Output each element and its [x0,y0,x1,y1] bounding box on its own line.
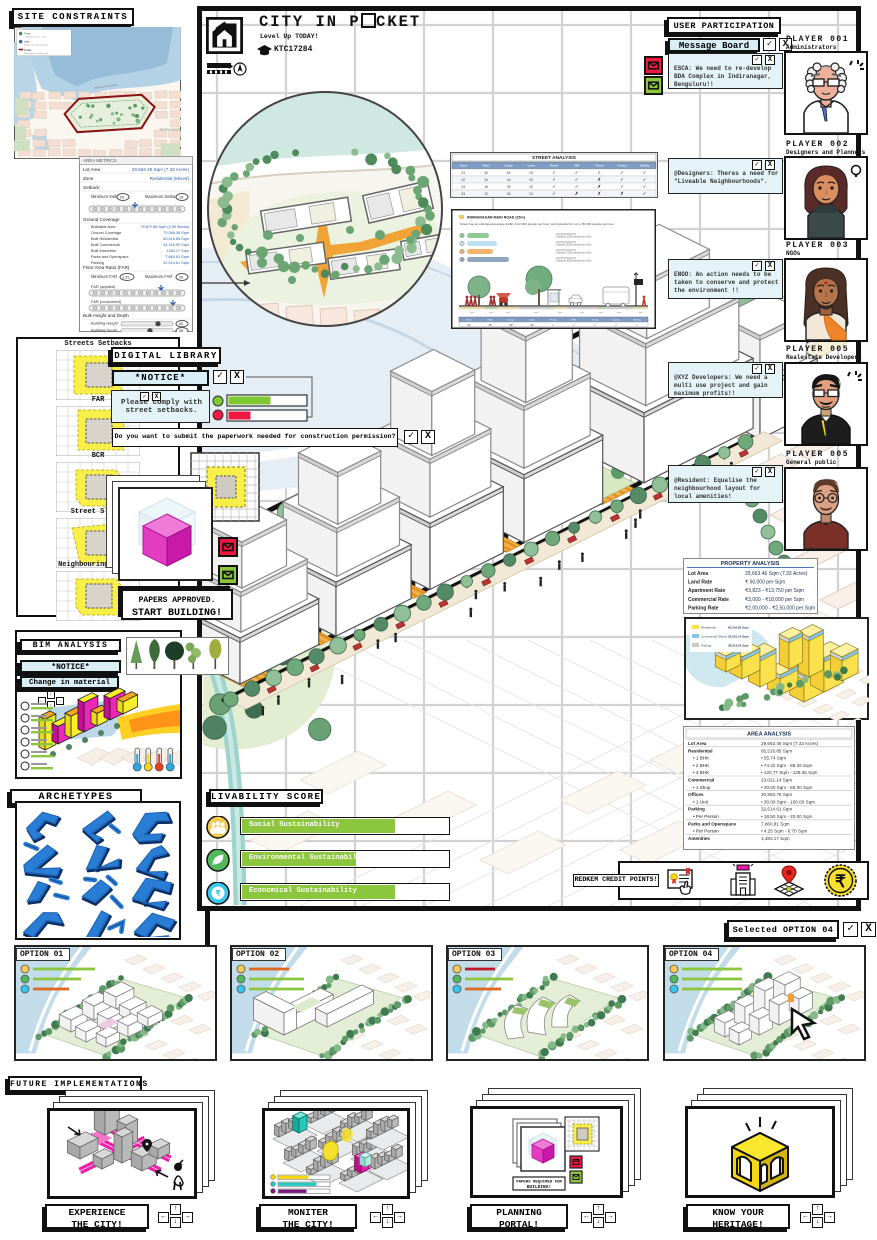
svg-text:1,483.17 Sqm: 1,483.17 Sqm [761,836,790,841]
svg-text:NMT: NMT [572,320,577,322]
svg-text:• 18.50 Sqm - 20.00 Sqm: • 18.50 Sqm - 20.00 Sqm [761,814,813,819]
svg-text:Ground Coverage: Ground Coverage [83,217,120,222]
svg-text:• 30.00 Sqm - 65.00 Sqm: • 30.00 Sqm - 65.00 Sqm [761,785,813,790]
svg-text:Maximum FAR: Maximum FAR [145,274,172,279]
svg-text:01: 01 [462,171,466,175]
svg-text:29,663.46 Sqm (7.33 Acres): 29,663.46 Sqm (7.33 Acres) [761,741,819,746]
svg-text:Built Commercial: Built Commercial [91,243,120,247]
svg-text:01: 01 [530,323,534,327]
svg-text:32,514.61 Sqm: 32,514.61 Sqm [728,644,749,648]
svg-text:7,860.81 Sqm: 7,860.81 Sqm [761,821,790,826]
svg-text:18: 18 [484,185,488,189]
svg-text:Capacity 3000 people per hour: Capacity 3000 people per hour [556,235,592,239]
svg-text:04: 04 [462,192,466,196]
svg-text:Minimum FAR: Minimum FAR [91,274,117,279]
svg-text:Lot Area: Lot Area [83,167,101,172]
svg-text:✗: ✗ [597,177,601,182]
svg-text:05: 05 [120,196,124,200]
svg-text:1483.17 Sqm: 1483.17 Sqm [166,249,189,253]
svg-text:24: 24 [484,178,488,182]
svg-text:✓: ✓ [552,177,556,182]
svg-text:✓: ✓ [552,323,554,327]
svg-text:✗: ✗ [575,191,579,196]
svg-text:Lot Area: Lot Area [688,741,707,746]
svg-text:Parking: Parking [701,644,712,648]
svg-text:✓: ✓ [643,170,647,175]
svg-text:05: 05 [179,276,183,280]
svg-text:• 1 Shop: • 1 Shop [693,785,711,790]
svg-text:PAPERS REQUIRED FOR: PAPERS REQUIRED FOR [516,1181,562,1185]
svg-text:65,516.85 Sqm: 65,516.85 Sqm [761,748,792,753]
svg-text:Private: Private [550,164,559,168]
svg-text:• 1 BHK: • 1 BHK [693,756,710,761]
svg-text:Apartment Rate: Apartment Rate [688,588,725,594]
svg-text:Land Rate: Land Rate [688,580,712,586]
svg-text:30: 30 [507,192,511,196]
svg-text:• 2 BHK: • 2 BHK [693,763,710,768]
svg-text:Residential: Residential [701,626,716,630]
svg-text:Walking: Walking [633,320,641,322]
svg-text:✓: ✓ [552,170,556,175]
svg-text:Cycling: Cycling [618,164,627,168]
svg-text:Design: Design [505,164,514,168]
svg-text:✓: ✓ [575,184,579,189]
svg-text:✗: ✗ [597,184,601,189]
svg-text:60: 60 [179,322,183,326]
svg-text:Street: Street [460,164,467,168]
svg-text:Design: Design [508,320,516,322]
svg-text:Amenities: Amenities [688,836,710,841]
svg-text:• 120.77 Sqm - 139.35 Sqm: • 120.77 Sqm - 139.35 Sqm [761,770,818,775]
svg-text:₹3,000 - ₹18,000 per Sqm: ₹3,000 - ₹18,000 per Sqm [745,597,804,603]
svg-text:Cycling: Cycling [612,320,620,322]
svg-text:FAR (consumed): FAR (consumed) [91,299,122,304]
svg-text:Commercial: Commercial [688,778,714,783]
svg-text:• 74.32 Sqm - 88.26 Sqm: • 74.32 Sqm - 88.26 Sqm [761,763,813,768]
svg-text:Lake: Lake [24,41,30,44]
svg-text:02: 02 [462,178,466,182]
svg-text:Capacity 7000 people per hour: Capacity 7000 people per hour [556,251,592,255]
svg-text:✓: ✓ [620,184,624,189]
svg-text:Street has an estimated averag: Street has an estimated average traffic … [460,222,615,226]
svg-text:✓: ✓ [615,323,617,327]
svg-text:Parks and Openspace: Parks and Openspace [688,821,736,826]
svg-text:Maximum Setback: Maximum Setback [145,194,180,199]
svg-text:03: 03 [530,171,534,175]
svg-text:15: 15 [488,323,492,327]
svg-text:• 3 BHK: • 3 BHK [693,770,710,775]
svg-text:✓: ✓ [552,184,556,189]
svg-text:✗: ✗ [597,191,601,196]
svg-text:Width: Width [483,164,490,168]
svg-text:Width: Width [487,319,493,322]
svg-text:✓: ✓ [643,184,647,189]
svg-text:29,663.46 Sqm (7.33 Acres): 29,663.46 Sqm (7.33 Acres) [132,167,190,172]
svg-text:Commercial Rate: Commercial Rate [688,597,729,603]
svg-text:65,516.85 Sqm: 65,516.85 Sqm [728,626,749,630]
svg-text:✓: ✓ [620,170,624,175]
svg-text:Lanes: Lanes [528,164,536,168]
svg-text:₹ 60,000 per Sqm: ₹ 60,000 per Sqm [745,580,785,586]
svg-text:₹3,823 - ₹13,750 per Sqm: ₹3,823 - ₹13,750 per Sqm [745,588,804,594]
svg-text:Zone: Zone [83,176,94,181]
svg-text:AREA ANALYSIS: AREA ANALYSIS [747,732,791,738]
svg-text:Transit: Transit [592,319,599,322]
svg-text:Commercial Offices: Commercial Offices [701,635,728,639]
svg-text:70,066.38 Sqm: 70,066.38 Sqm [163,231,189,235]
svg-text:Parking: Parking [688,807,705,812]
svg-text:Street: Street [466,319,472,322]
svg-text:65,516.85 Sqm: 65,516.85 Sqm [163,237,189,241]
svg-text:3.25: 3.25 [122,276,129,280]
svg-text:29,663.46 Sqm (7.33 Acres): 29,663.46 Sqm (7.33 Acres) [745,571,808,577]
svg-text:✓: ✓ [636,323,638,327]
svg-text:✓: ✓ [573,323,575,327]
svg-text:✓: ✓ [552,191,556,196]
svg-text:40: 40 [509,323,513,327]
svg-text:• 4.25 Sqm - 8.70 Sqm: • 4.25 Sqm - 8.70 Sqm [761,829,807,834]
svg-text:Capacity 9000 people per hour: Capacity 9000 people per hour [556,259,592,263]
svg-text:AREA METRICS: AREA METRICS [83,158,117,163]
svg-text:Setback: Setback [83,185,100,190]
svg-text:Floor Area Ratio (FAR): Floor Area Ratio (FAR) [83,265,130,270]
svg-text:Offices: Offices [688,792,704,797]
svg-text:01: 01 [530,192,534,196]
svg-text:Parking Rate: Parking Rate [688,605,719,611]
svg-text:Lot Area: Lot Area [688,571,708,577]
svg-text:Building Depth: Building Depth [91,328,117,333]
svg-text:Residential (Mixed): Residential (Mixed) [150,176,190,181]
svg-text:₹2,00,000 - ₹2,50,000 per Sqm: ₹2,00,000 - ₹2,50,000 per Sqm [745,605,815,611]
svg-text:Parks and Openspace: Parks and Openspace [91,255,129,259]
svg-text:• 30.00 Sqm - 100.00 Sqm: • 30.00 Sqm - 100.00 Sqm [761,799,815,804]
svg-text:✓: ✓ [594,323,596,327]
svg-text:40: 40 [507,178,511,182]
svg-text:Bulk Height and Depth: Bulk Height and Depth [83,313,129,318]
svg-text:02: 02 [530,178,534,182]
svg-text:Transit: Transit [595,164,603,168]
svg-text:Ground Coverage: Ground Coverage [91,231,121,235]
svg-text:✓: ✓ [643,177,647,182]
svg-text:7,860.81 Sqm: 7,860.81 Sqm [165,255,189,259]
svg-text:STREET ANALYSIS: STREET ANALYSIS [532,155,577,161]
svg-text:76,872.88 Sqm (4.35 Works): 76,872.88 Sqm (4.35 Works) [141,225,190,229]
svg-text:Trees: Trees [24,33,31,36]
svg-text:23,021.14 Sqm: 23,021.14 Sqm [728,635,749,639]
svg-text:02: 02 [530,185,534,189]
svg-text:Building Height: Building Height [91,321,119,326]
svg-text:Roads: Roads [24,49,32,52]
svg-text:Residential: Residential [688,748,713,753]
svg-text:✓: ✓ [643,191,647,196]
svg-text:✓: ✓ [620,177,624,182]
svg-text:Capacity 5000 people per hour: Capacity 5000 people per hour [556,243,592,247]
svg-text:₹: ₹ [216,889,221,898]
svg-text:Private: Private [550,319,558,322]
svg-text:✓: ✓ [575,177,579,182]
svg-text:• Per Person: • Per Person [693,829,719,834]
svg-text:Walking: Walking [640,164,650,168]
svg-text:₹: ₹ [835,872,846,891]
svg-text:50: 50 [507,171,511,175]
svg-text:Lanes: Lanes [529,320,536,322]
svg-text:20,893.76 Sqm: 20,893.76 Sqm [761,792,792,797]
svg-text:Built Amenities: Built Amenities [91,249,116,253]
svg-text:32,514.61 Sqm: 32,514.61 Sqm [761,807,792,812]
svg-text:• 55.74 Sqm: • 55.74 Sqm [761,756,786,761]
svg-text:PROPERTY ANALYSIS: PROPERTY ANALYSIS [721,561,780,567]
svg-text:30: 30 [484,171,488,175]
svg-text:08: 08 [179,329,183,332]
svg-text:03: 03 [462,185,466,189]
svg-text:15: 15 [179,196,183,200]
svg-text:✗: ✗ [620,191,624,196]
svg-text:BUILDING!: BUILDING! [527,1184,551,1190]
svg-text:30: 30 [507,185,511,189]
svg-text:23,021.14 Sqm: 23,021.14 Sqm [761,778,792,783]
svg-text:01: 01 [467,323,471,327]
svg-text:HOYSALA NAGAR: HOYSALA NAGAR [160,129,181,132]
svg-text:12: 12 [484,192,488,196]
svg-text:• Per Person: • Per Person [693,814,719,819]
svg-text:• 1 Unit: • 1 Unit [693,799,709,804]
svg-text:44,316.90 Sqm: 44,316.90 Sqm [163,243,189,247]
svg-text:✓: ✓ [597,170,601,175]
svg-text:INDIRANAGAR MAIN ROAD (15m): INDIRANAGAR MAIN ROAD (15m) [467,216,526,220]
svg-text:Buildable Area: Buildable Area [91,225,116,229]
svg-text:NMT: NMT [574,164,580,168]
svg-text:Built Residential: Built Residential [91,237,118,241]
svg-text:FAR (applied): FAR (applied) [91,284,116,289]
svg-text:32,514.61 Sqm: 32,514.61 Sqm [163,261,189,265]
svg-text:✓: ✓ [575,170,579,175]
